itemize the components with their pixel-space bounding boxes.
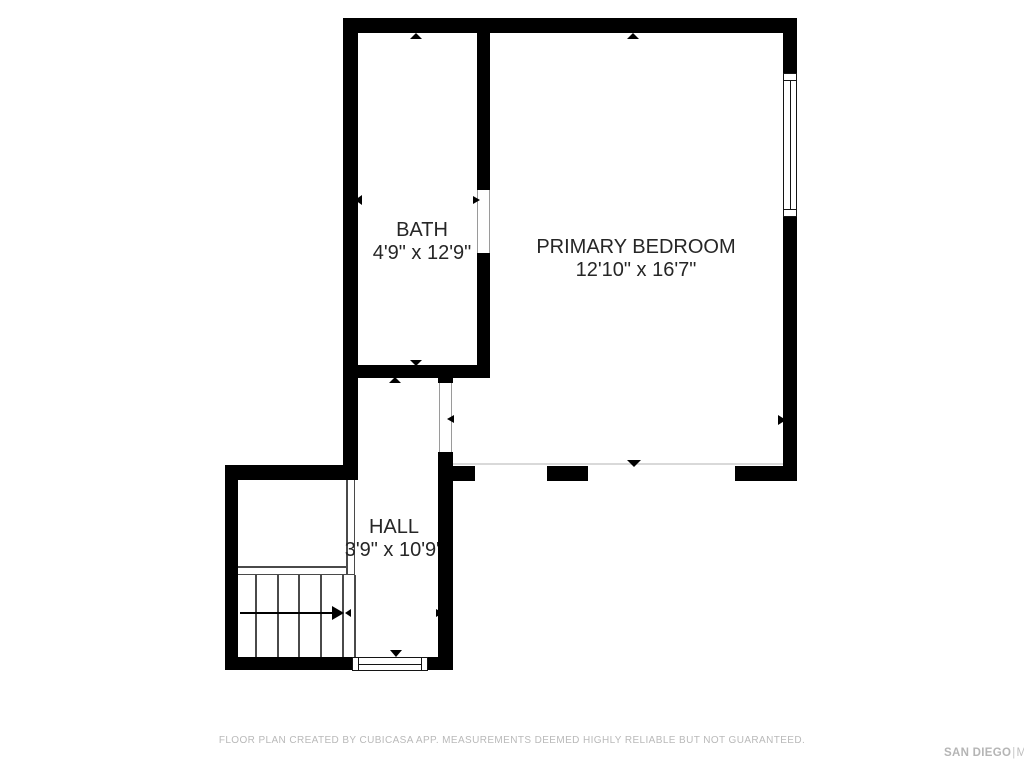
floor-plan: BATH 4'9" x 12'9" PRIMARY BEDROOM 12'10"… xyxy=(0,0,1024,768)
stair-tread xyxy=(320,575,322,657)
wall-bath-bedroom-divider-lower xyxy=(477,253,490,378)
wall-top xyxy=(343,18,797,33)
wall-stair-left xyxy=(225,465,238,670)
stair-direction-arrow xyxy=(240,612,333,614)
tick-down-icon xyxy=(390,650,402,657)
hall-door-jamb-left xyxy=(439,383,440,452)
tick-up-icon xyxy=(389,377,401,383)
room-name: BATH xyxy=(342,219,502,242)
wall-bedroom-bottom-middle xyxy=(547,466,588,481)
tick-up-icon xyxy=(410,33,422,39)
tick-down-icon xyxy=(410,360,422,366)
stair-tread xyxy=(298,575,300,657)
tick-left-icon xyxy=(355,195,362,205)
wall-right-above-window xyxy=(783,18,797,73)
tick-up-icon xyxy=(627,33,639,39)
bedroom-window xyxy=(783,73,797,217)
watermark-brand: SAN DIEGO xyxy=(944,747,1011,759)
stair-tread xyxy=(277,575,279,657)
stair-landing-inner-edge-horizontal xyxy=(237,566,347,568)
tick-right-icon xyxy=(436,609,443,617)
wall-left xyxy=(343,18,358,480)
wall-bedroom-bottom-left-stub xyxy=(453,466,475,481)
footer-disclaimer: FLOOR PLAN CREATED BY CUBICASA APP. MEAS… xyxy=(0,735,1024,746)
wall-right-below-window xyxy=(783,217,797,481)
tick-right-icon xyxy=(778,415,786,425)
room-name: PRIMARY BEDROOM xyxy=(486,236,786,259)
hall-window xyxy=(352,657,428,671)
tick-left-icon xyxy=(447,415,454,423)
stair-tick-left-icon xyxy=(345,609,351,617)
wall-bedroom-bottom-right xyxy=(735,466,797,481)
wall-bath-bedroom-divider-upper xyxy=(477,33,490,190)
wall-bottom-left-of-window xyxy=(225,657,352,670)
wall-hall-right xyxy=(438,452,453,670)
tick-right-icon xyxy=(473,196,480,204)
mls-watermark: SAN DIEGO|MLS xyxy=(944,747,1024,759)
wall-hall-right-stub xyxy=(438,377,453,383)
stair-edge xyxy=(354,575,356,657)
stair-arrow-head-right-icon xyxy=(332,606,344,620)
room-dimensions: 12'10" x 16'7" xyxy=(486,259,786,282)
wall-bath-bottom xyxy=(343,365,490,378)
watermark-suffix: MLS xyxy=(1017,747,1024,759)
stair-tread xyxy=(255,575,257,657)
bedroom-opening-line xyxy=(453,463,797,465)
wall-bottom-right-of-window xyxy=(428,657,453,670)
room-label-primary-bedroom: PRIMARY BEDROOM 12'10" x 16'7" xyxy=(486,236,786,282)
tick-down-icon xyxy=(627,460,641,467)
wall-stair-top xyxy=(225,465,358,480)
watermark-separator: | xyxy=(1012,747,1015,759)
